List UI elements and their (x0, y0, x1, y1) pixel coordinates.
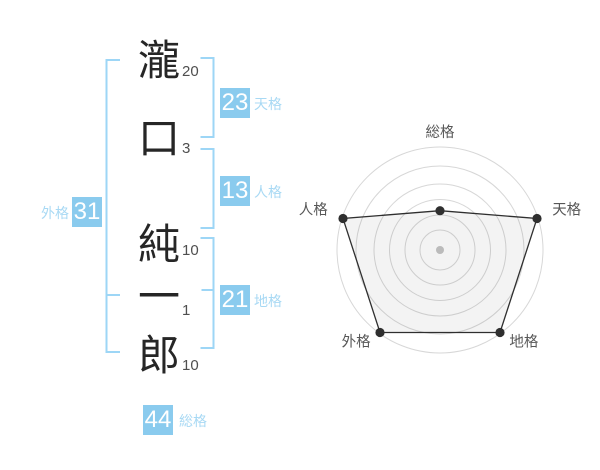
radar-polygon (343, 211, 537, 333)
radar-center-dot (436, 246, 444, 254)
radar-axis-label: 総格 (426, 124, 455, 141)
radar-vertex-dot (435, 206, 444, 215)
radar-axis-label: 外格 (342, 334, 371, 351)
radar-vertex-dot (495, 328, 504, 337)
seimei-handan-panel: 瀧20口3純10一1郎10 23天格13人格21地格31外格44総格 総格天格地… (0, 0, 600, 470)
radar-chart: 総格天格地格外格人格 (0, 0, 600, 470)
radar-vertex-dot (338, 214, 347, 223)
radar-axis-label: 人格 (299, 202, 328, 219)
radar-axis-label: 天格 (552, 202, 581, 219)
radar-vertex-dot (375, 328, 384, 337)
radar-vertex-dot (532, 214, 541, 223)
radar-axis-label: 地格 (509, 334, 538, 351)
